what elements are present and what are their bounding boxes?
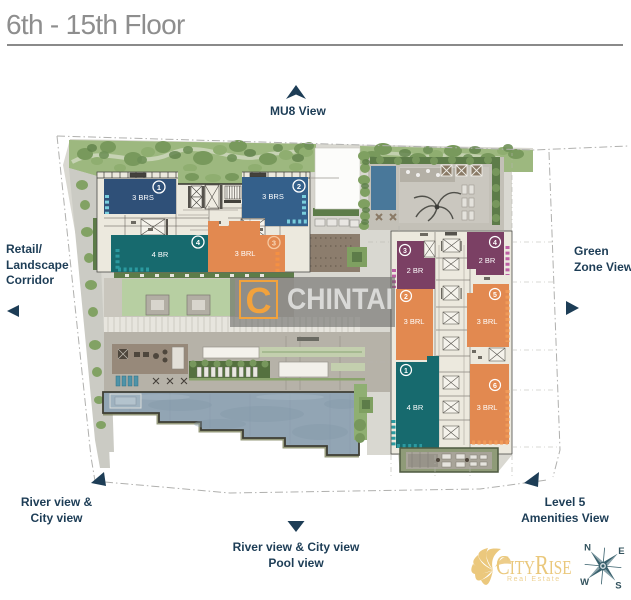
svg-text:1: 1 (404, 368, 408, 375)
svg-text:3 BRS: 3 BRS (132, 193, 154, 202)
svg-text:4 BR: 4 BR (152, 250, 169, 259)
svg-text:4: 4 (493, 240, 497, 247)
svg-text:3 BRL: 3 BRL (404, 317, 425, 326)
svg-text:3 BRL: 3 BRL (235, 249, 256, 258)
svg-text:CHINTAI: CHINTAI (287, 283, 393, 316)
svg-text:2 BR: 2 BR (479, 256, 496, 265)
svg-text:5: 5 (493, 292, 497, 299)
svg-text:6: 6 (493, 383, 497, 390)
svg-text:2: 2 (404, 294, 408, 301)
svg-text:3 BRL: 3 BRL (477, 317, 498, 326)
svg-text:2 BR: 2 BR (407, 266, 424, 275)
svg-text:C: C (246, 280, 272, 321)
svg-text:1: 1 (157, 183, 161, 192)
svg-text:3: 3 (272, 239, 276, 248)
svg-text:3 BRS: 3 BRS (262, 192, 284, 201)
svg-text:3 BRL: 3 BRL (477, 403, 498, 412)
svg-text:3: 3 (403, 248, 407, 255)
svg-text:4 BR: 4 BR (407, 403, 424, 412)
svg-text:2: 2 (297, 182, 301, 191)
